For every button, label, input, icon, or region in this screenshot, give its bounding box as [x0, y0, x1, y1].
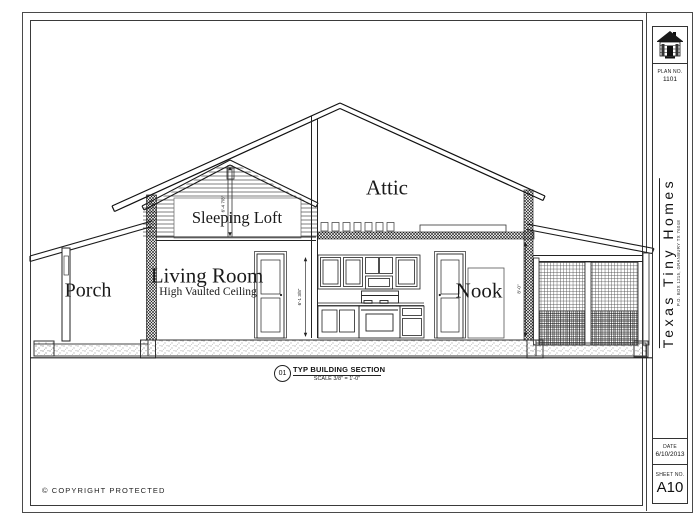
living-room-label: Living Room: [151, 264, 264, 289]
living-room-sublabel: High Vaulted Ceiling: [159, 286, 257, 298]
section-title: TYP BUILDING SECTION: [293, 365, 381, 376]
building-section-linework: 6'-4 7/8" 6'-1 3/8" 8'-0": [0, 0, 700, 525]
section-callout-bubble: 01: [274, 365, 291, 382]
sleeping-loft-label: Sleeping Loft: [192, 208, 282, 228]
date-value: 6/10/2013: [656, 451, 685, 459]
foundation-slab: [34, 340, 648, 358]
nook-height-dim: 8'-0": [517, 284, 522, 294]
date-box: DATE 6/10/2013: [653, 438, 687, 464]
plan-number-box: PLAN NO. 1101: [653, 63, 687, 88]
company-address: P.O. BOX 1215, GRANBURY TX 76048: [676, 178, 681, 348]
sheet-number-value: A10: [657, 480, 684, 496]
attic-label: Attic: [366, 176, 408, 201]
company-logo: [653, 27, 687, 63]
main-roof: [112, 103, 545, 212]
ceiling-insulation-band: [318, 223, 534, 240]
wall-height-dim: 6'-1 3/8": [297, 288, 302, 305]
interior-wall: [312, 116, 318, 338]
plan-number-label: PLAN NO.: [658, 69, 683, 76]
plan-number-value: 1101: [663, 76, 677, 84]
title-block: PLAN NO. 1101 Texas Tiny Homes P.O. BOX …: [652, 26, 688, 504]
copyright-note: © COPYRIGHT PROTECTED: [42, 486, 166, 495]
section-number: 01: [279, 370, 287, 377]
porch-roof: [30, 221, 152, 262]
architectural-sheet: 6'-4 7/8" 6'-1 3/8" 8'-0" Porch Living R…: [0, 0, 700, 525]
section-callout: TYP BUILDING SECTION SCALE 3/8" = 1'-0": [293, 365, 381, 382]
nook-label: Nook: [456, 279, 503, 304]
section-scale: SCALE 3/8" = 1'-0": [293, 376, 381, 382]
screened-porch-roof: [527, 224, 654, 254]
date-label: DATE: [663, 444, 677, 451]
company-rotated-text: Texas Tiny Homes P.O. BOX 1215, GRANBURY…: [659, 178, 681, 348]
sheet-number-label: SHEET NO.: [656, 472, 685, 479]
screened-porch: [533, 253, 649, 345]
sheet-number-box: SHEET NO. A10: [653, 464, 687, 503]
range-oven: [359, 291, 400, 338]
company-logo-house-icon: [657, 30, 683, 60]
kitchen-cabinets: [318, 255, 424, 338]
porch-label: Porch: [65, 280, 112, 303]
company-name-box: Texas Tiny Homes P.O. BOX 1215, GRANBURY…: [653, 88, 687, 438]
company-name: Texas Tiny Homes: [659, 178, 676, 348]
